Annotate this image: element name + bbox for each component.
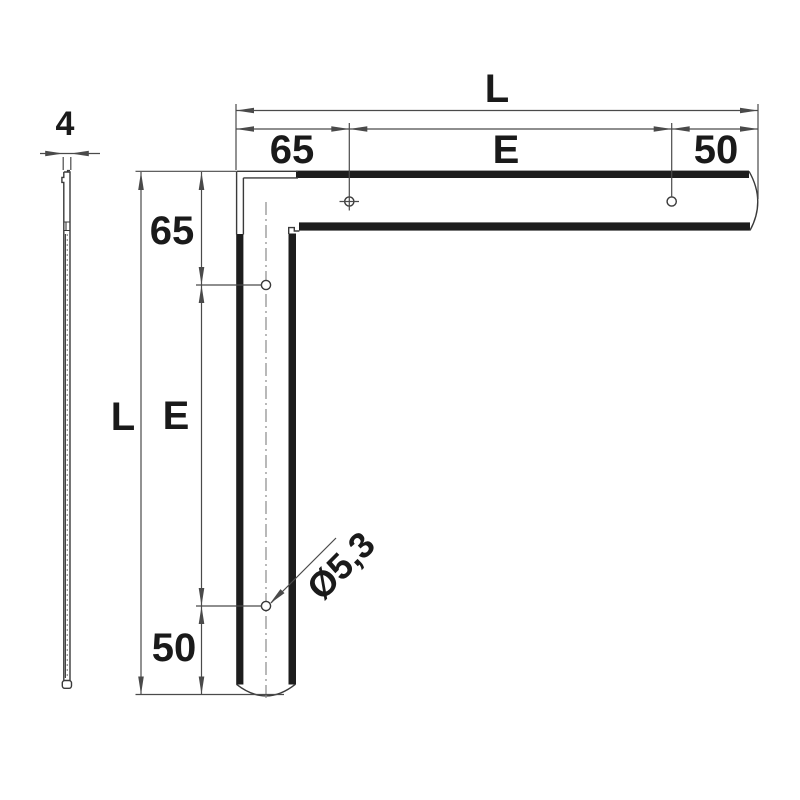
bracket-top-band — [296, 171, 749, 178]
hole-vertical-upper — [261, 280, 270, 289]
dim-left-chain-arrow-4 — [199, 588, 205, 606]
bracket-right-end-arc — [749, 171, 758, 230]
bracket-corner-outline — [237, 171, 298, 234]
bracket-inner-band-vertical — [289, 234, 297, 685]
dim-top-total-arrow-right — [740, 108, 758, 113]
dim-left-chain-arrow-3 — [199, 285, 205, 303]
dim-top-chain-arrow-6 — [740, 126, 758, 132]
dim-top-65-label: 65 — [270, 128, 315, 172]
dim-top-50-label: 50 — [694, 128, 739, 172]
dim-left-chain-arrow-2 — [199, 267, 205, 285]
dim-top-total-arrow-left — [236, 108, 254, 113]
dim-top-e-label: E — [493, 128, 520, 172]
main-view: L 65 E 50 L — [111, 67, 758, 701]
dim-left-total-arrow-top — [138, 172, 144, 190]
bracket-body — [236, 171, 758, 696]
technical-drawing: 4 — [0, 0, 800, 800]
left-dimensions: L 65 E 50 — [111, 171, 284, 694]
profile-outline — [62, 171, 72, 689]
thickness-label: 4 — [56, 105, 75, 143]
dim-left-total-arrow-bottom — [138, 677, 144, 695]
dim-left-chain-arrow-6 — [199, 677, 205, 695]
bracket-inner-corner-step — [289, 228, 300, 234]
profile-corner-seam — [64, 222, 70, 231]
profile-left-edge — [62, 172, 64, 681]
bracket-left-band — [236, 234, 243, 685]
top-dimensions: L 65 E 50 — [236, 67, 758, 211]
dim-left-chain-arrow-1 — [199, 172, 205, 190]
dim-top-chain-arrow-4 — [654, 126, 672, 132]
hole-diameter-callout: Ø5,3 — [270, 523, 383, 607]
thickness-arrow-right — [71, 151, 89, 157]
bracket-inner-band-horizontal — [299, 222, 750, 230]
dim-left-total-label: L — [111, 395, 135, 439]
holes — [261, 197, 676, 611]
thickness-dimension: 4 — [40, 105, 100, 170]
dim-top-chain-arrow-2 — [331, 126, 349, 132]
hole-diameter-label: Ø5,3 — [299, 523, 383, 607]
hole-diameter-leader-arrow — [270, 589, 285, 604]
dim-top-chain-arrow-5 — [672, 126, 690, 132]
dim-top-total-label: L — [485, 67, 509, 111]
hole-top-right — [667, 197, 676, 206]
dim-top-chain-arrow-1 — [236, 126, 254, 132]
dim-left-e-label: E — [163, 394, 190, 438]
dim-left-chain-arrow-5 — [199, 606, 205, 624]
thickness-arrow-left — [45, 151, 63, 157]
hole-vertical-lower — [261, 601, 270, 610]
dim-top-chain-arrow-3 — [349, 126, 367, 132]
side-view: 4 — [40, 105, 100, 688]
dim-left-50-label: 50 — [152, 626, 197, 670]
profile-bottom-cap — [62, 681, 71, 689]
dim-left-65-label: 65 — [150, 209, 195, 253]
